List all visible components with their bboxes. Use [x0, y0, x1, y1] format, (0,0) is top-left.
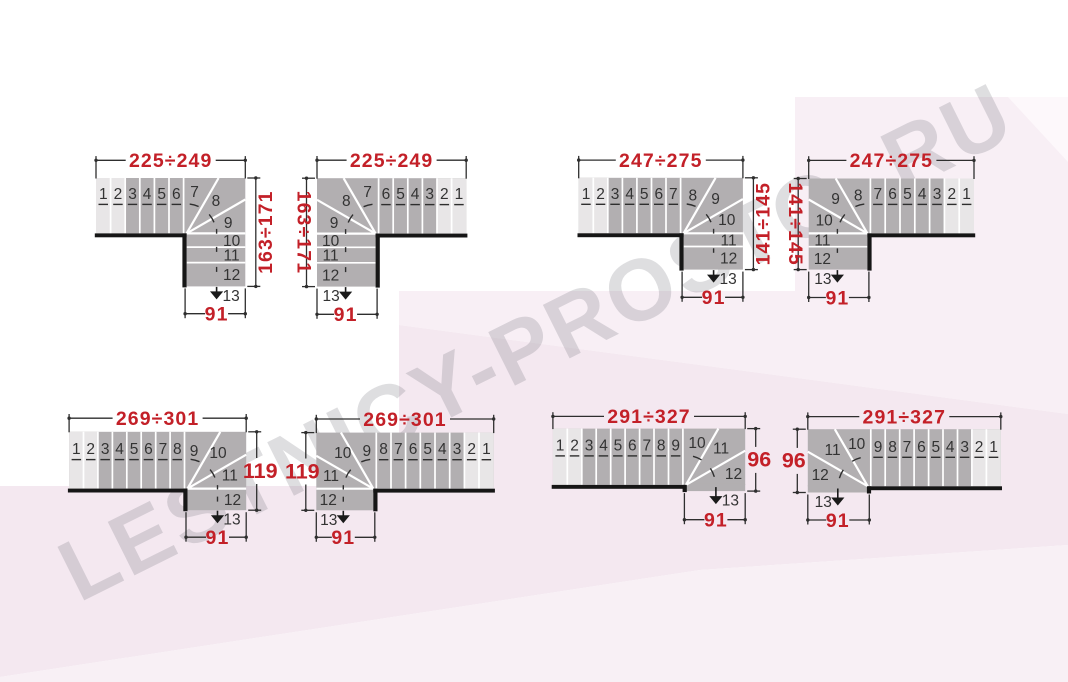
svg-text:11: 11	[814, 233, 830, 250]
svg-text:10: 10	[688, 435, 706, 452]
svg-text:1: 1	[989, 439, 998, 456]
svg-text:225÷249: 225÷249	[129, 150, 212, 172]
svg-text:11: 11	[825, 442, 841, 459]
svg-text:6: 6	[628, 437, 637, 454]
svg-text:4: 4	[599, 437, 608, 454]
svg-text:4: 4	[946, 439, 955, 456]
svg-text:11: 11	[721, 233, 737, 250]
svg-text:291÷327: 291÷327	[607, 406, 690, 428]
svg-text:3: 3	[611, 186, 620, 203]
svg-text:4: 4	[625, 186, 634, 203]
svg-text:3: 3	[453, 441, 462, 458]
svg-text:91: 91	[702, 287, 726, 309]
svg-text:7: 7	[394, 441, 403, 458]
svg-text:7: 7	[363, 184, 372, 201]
svg-text:5: 5	[931, 439, 940, 456]
svg-text:2: 2	[86, 441, 95, 458]
svg-text:13: 13	[222, 288, 239, 305]
svg-text:3: 3	[425, 186, 434, 203]
svg-text:10: 10	[209, 445, 227, 462]
svg-text:2: 2	[596, 186, 605, 203]
svg-text:13: 13	[814, 271, 831, 288]
svg-text:5: 5	[130, 441, 139, 458]
svg-text:12: 12	[322, 267, 339, 284]
svg-text:11: 11	[323, 468, 339, 485]
svg-text:7: 7	[642, 437, 651, 454]
svg-text:141÷145: 141÷145	[784, 182, 806, 265]
svg-text:7: 7	[873, 186, 882, 203]
svg-text:9: 9	[831, 191, 840, 208]
svg-text:12: 12	[224, 492, 241, 509]
svg-text:9: 9	[330, 215, 339, 232]
svg-text:8: 8	[854, 188, 863, 205]
svg-text:4: 4	[143, 186, 152, 203]
svg-text:8: 8	[888, 439, 897, 456]
svg-text:91: 91	[826, 510, 850, 532]
svg-text:8: 8	[657, 437, 666, 454]
svg-text:1: 1	[582, 186, 591, 203]
svg-text:11: 11	[222, 468, 238, 485]
svg-text:2: 2	[440, 186, 449, 203]
svg-text:3: 3	[128, 186, 137, 203]
svg-text:11: 11	[224, 247, 240, 264]
svg-text:6: 6	[382, 186, 391, 203]
svg-text:11: 11	[323, 248, 339, 265]
svg-text:1: 1	[482, 441, 491, 458]
svg-text:4: 4	[411, 186, 420, 203]
svg-text:9: 9	[362, 443, 371, 460]
svg-text:91: 91	[704, 510, 728, 532]
svg-text:2: 2	[114, 186, 123, 203]
svg-text:6: 6	[409, 441, 418, 458]
svg-text:4: 4	[918, 186, 927, 203]
svg-text:2: 2	[975, 439, 984, 456]
svg-text:10: 10	[718, 212, 736, 229]
svg-text:163÷171: 163÷171	[293, 191, 315, 274]
svg-text:291÷327: 291÷327	[863, 406, 946, 428]
svg-text:1: 1	[455, 186, 464, 203]
svg-text:4: 4	[115, 441, 124, 458]
svg-text:7: 7	[903, 439, 912, 456]
svg-text:269÷301: 269÷301	[363, 409, 446, 431]
svg-text:5: 5	[157, 186, 166, 203]
svg-text:13: 13	[722, 493, 739, 510]
svg-text:4: 4	[438, 441, 447, 458]
svg-text:13: 13	[719, 271, 736, 288]
svg-text:5: 5	[423, 441, 432, 458]
svg-text:6: 6	[172, 186, 181, 203]
svg-text:10: 10	[816, 212, 834, 229]
svg-text:1: 1	[962, 186, 971, 203]
svg-text:96: 96	[782, 449, 806, 473]
svg-text:12: 12	[223, 267, 240, 284]
svg-text:2: 2	[947, 186, 956, 203]
svg-text:9: 9	[711, 191, 720, 208]
svg-text:269÷301: 269÷301	[116, 408, 199, 430]
svg-text:2: 2	[467, 441, 476, 458]
svg-text:3: 3	[101, 441, 110, 458]
svg-text:91: 91	[331, 527, 355, 549]
svg-text:9: 9	[190, 443, 199, 460]
svg-text:6: 6	[144, 441, 153, 458]
svg-text:6: 6	[888, 186, 897, 203]
svg-text:91: 91	[205, 304, 229, 326]
svg-text:9: 9	[874, 439, 883, 456]
svg-text:141÷145: 141÷145	[752, 182, 774, 265]
svg-text:8: 8	[212, 193, 221, 210]
svg-text:163÷171: 163÷171	[255, 190, 277, 273]
svg-text:8: 8	[173, 441, 182, 458]
svg-text:7: 7	[190, 184, 199, 201]
svg-text:9: 9	[224, 215, 233, 232]
svg-text:9: 9	[671, 437, 680, 454]
svg-text:13: 13	[815, 494, 832, 511]
svg-text:1: 1	[556, 437, 565, 454]
svg-text:91: 91	[825, 287, 849, 309]
svg-text:119: 119	[243, 459, 278, 483]
svg-text:5: 5	[396, 186, 405, 203]
svg-text:247÷275: 247÷275	[619, 150, 702, 172]
svg-text:6: 6	[917, 439, 926, 456]
svg-text:7: 7	[159, 441, 168, 458]
svg-text:247÷275: 247÷275	[850, 150, 933, 172]
svg-text:10: 10	[848, 436, 866, 453]
svg-text:1: 1	[72, 441, 81, 458]
svg-text:13: 13	[322, 288, 339, 305]
svg-text:12: 12	[720, 251, 737, 268]
svg-text:10: 10	[334, 445, 352, 462]
svg-text:119: 119	[285, 459, 320, 483]
svg-text:8: 8	[342, 193, 351, 210]
svg-text:6: 6	[654, 186, 663, 203]
svg-text:8: 8	[379, 441, 388, 458]
svg-text:91: 91	[334, 304, 358, 326]
svg-text:12: 12	[320, 492, 337, 509]
svg-text:12: 12	[812, 467, 829, 484]
svg-text:3: 3	[960, 439, 969, 456]
svg-text:5: 5	[614, 437, 623, 454]
svg-text:12: 12	[814, 251, 831, 268]
svg-text:12: 12	[725, 466, 742, 483]
svg-text:5: 5	[640, 186, 649, 203]
svg-text:7: 7	[669, 186, 678, 203]
svg-text:11: 11	[713, 440, 729, 457]
svg-text:91: 91	[206, 527, 230, 549]
svg-text:8: 8	[688, 188, 697, 205]
svg-text:2: 2	[570, 437, 579, 454]
svg-text:96: 96	[747, 448, 771, 472]
svg-text:225÷249: 225÷249	[350, 150, 433, 172]
svg-text:1: 1	[99, 186, 108, 203]
svg-text:3: 3	[933, 186, 942, 203]
svg-text:3: 3	[585, 437, 594, 454]
svg-text:5: 5	[903, 186, 912, 203]
